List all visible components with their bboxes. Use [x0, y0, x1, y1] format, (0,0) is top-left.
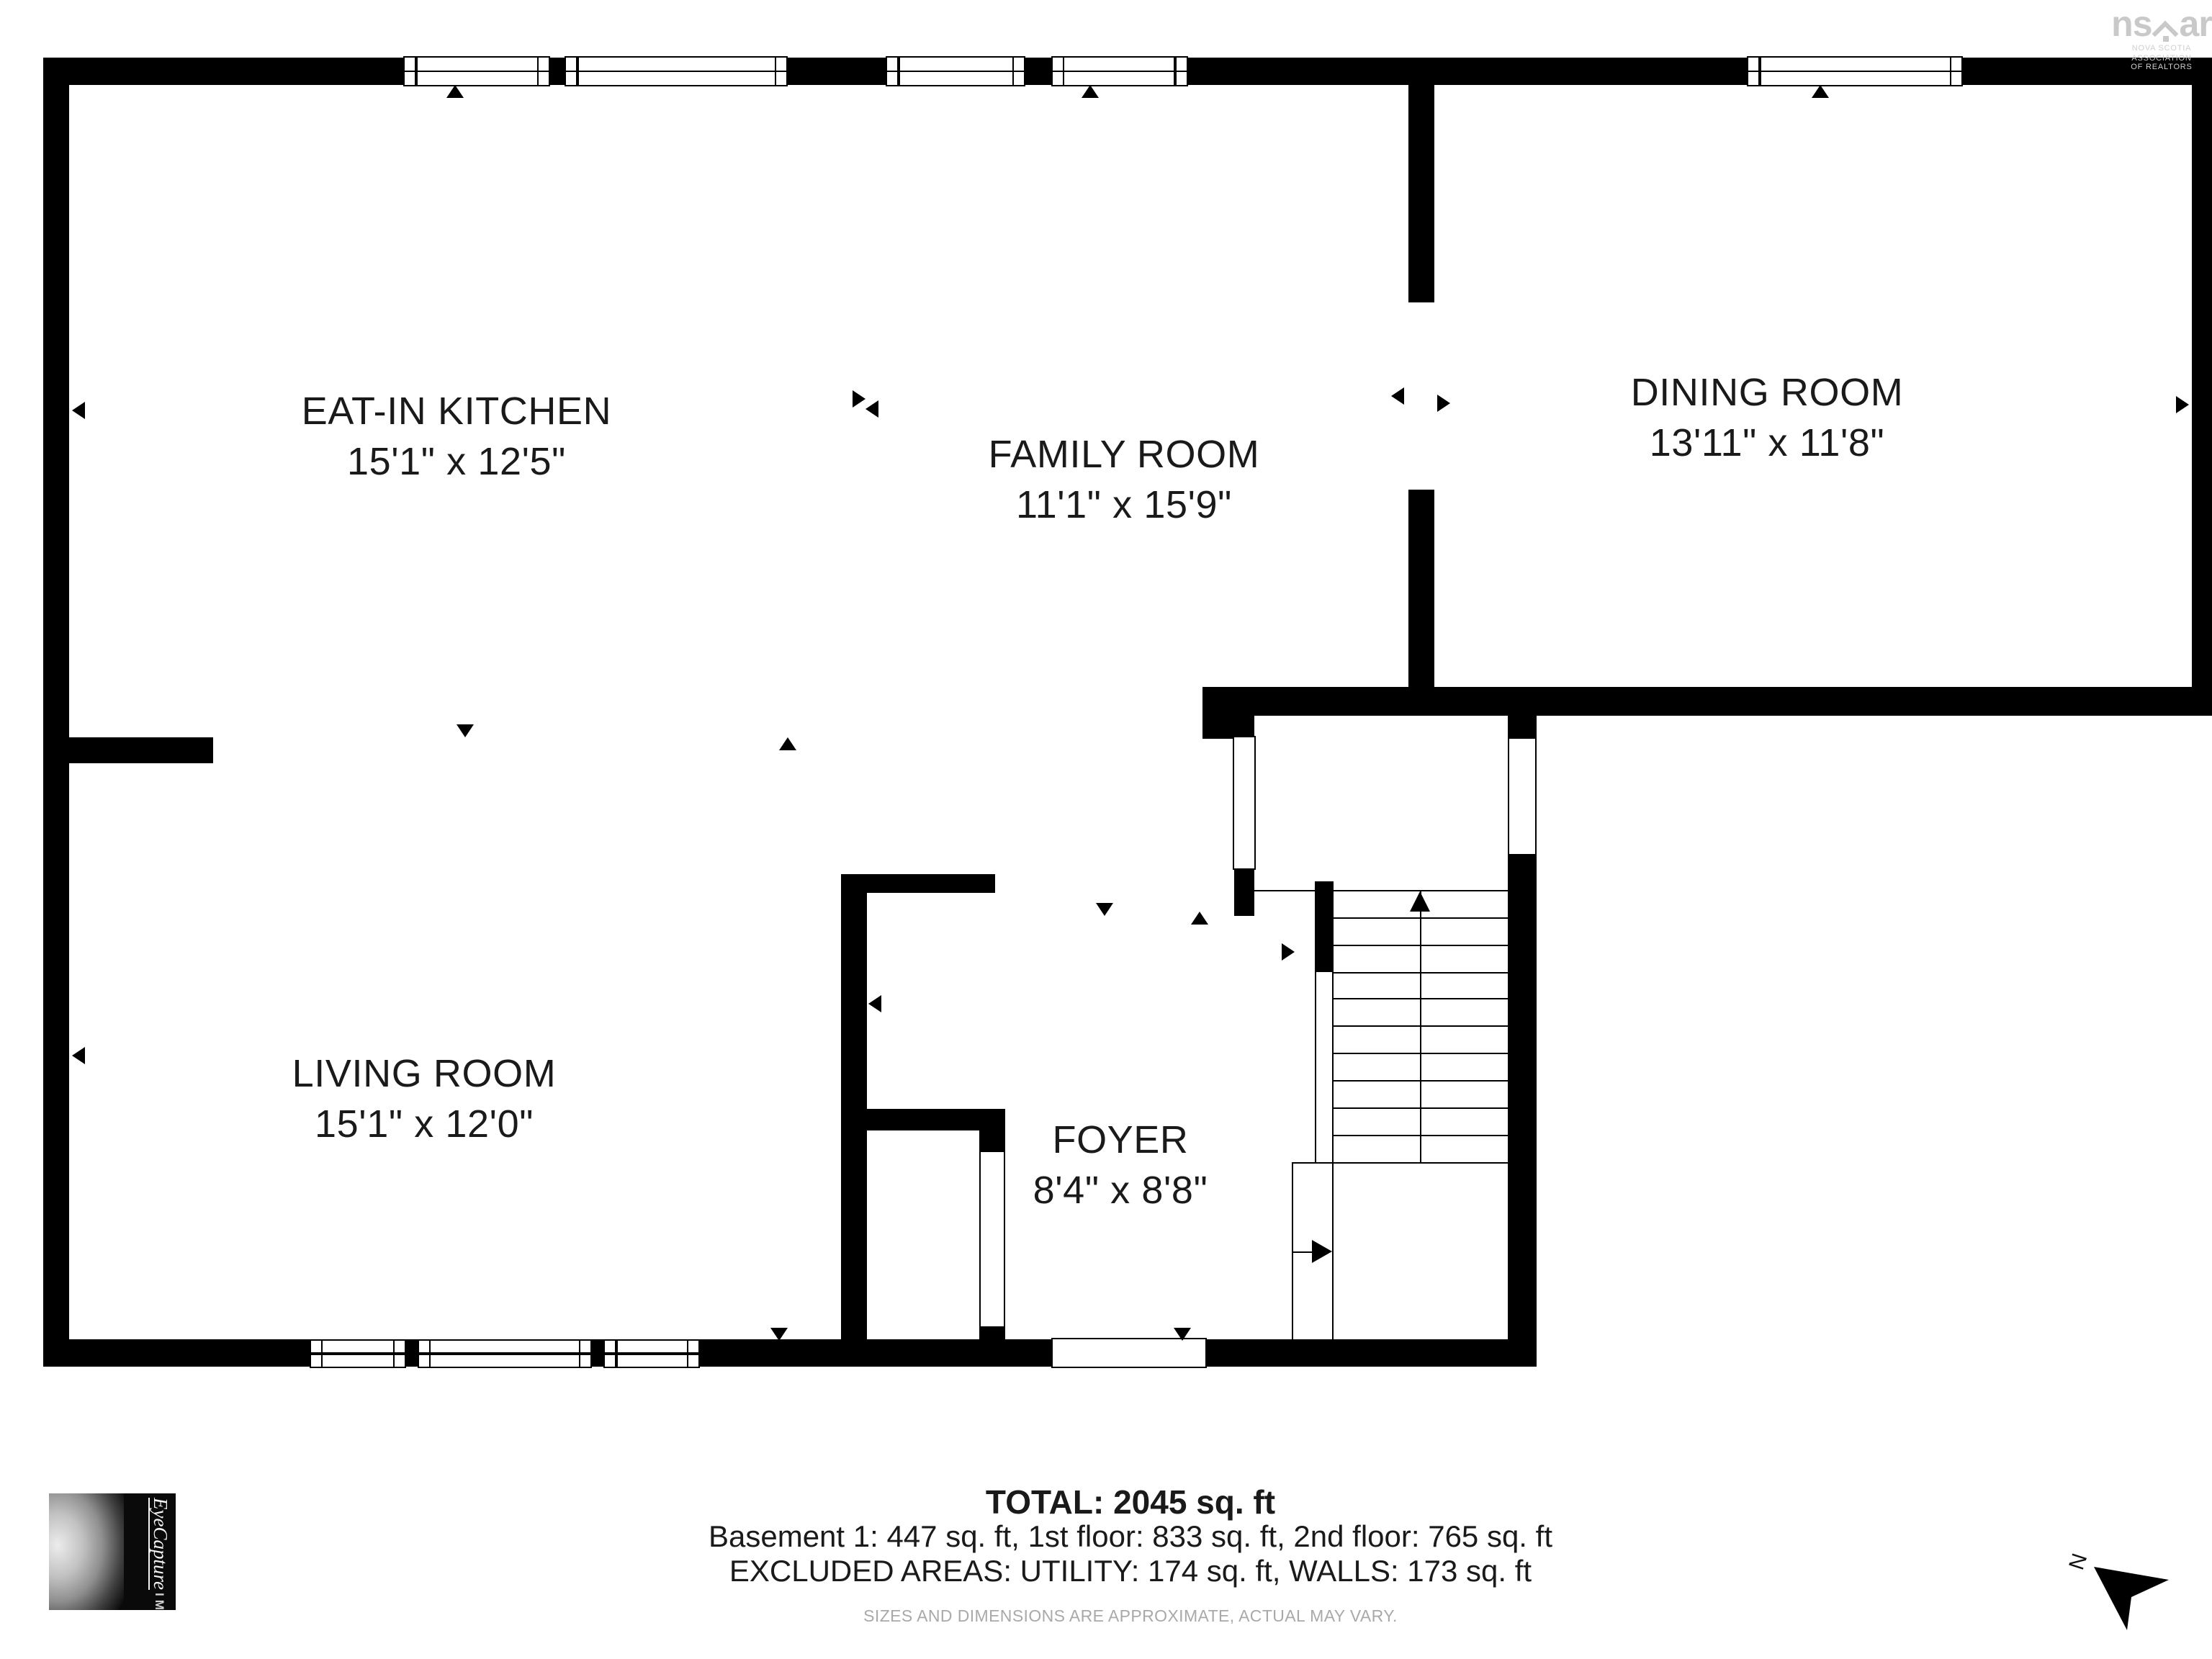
stair-center-line	[1420, 890, 1422, 1162]
room-name: DINING ROOM	[1631, 368, 1904, 418]
wall-foyer-top-stub	[841, 874, 995, 893]
nsar-wordmark-left: ns	[2111, 7, 2152, 42]
eyecapture-logo: EyeCapture IMAGES	[49, 1493, 176, 1610]
room-dims: 15'1" x 12'0"	[292, 1099, 557, 1148]
window-kitchen-2	[565, 56, 788, 86]
stair-landing-top-line	[1291, 1161, 1508, 1164]
room-name: EAT-IN KITCHEN	[302, 387, 611, 436]
window-marker-icon	[446, 85, 463, 98]
window-living-3	[603, 1339, 700, 1368]
room-dims: 13'11" x 11'8"	[1631, 418, 1904, 467]
window-marker-icon	[1812, 85, 1829, 98]
north-compass: N	[2068, 1547, 2172, 1636]
total-area-text: TOTAL: 2045 sq. ft	[709, 1483, 1552, 1521]
room-name: FAMILY ROOM	[989, 430, 1260, 480]
room-dims: 15'1" x 12'5"	[302, 436, 611, 486]
disclaimer-text: SIZES AND DIMENSIONS ARE APPROXIMATE, AC…	[709, 1609, 1552, 1626]
floor-plan-page: EAT-IN KITCHEN 15'1" x 12'5" FAMILY ROOM…	[0, 0, 2212, 1659]
stairs-up-arrow-icon	[1409, 891, 1429, 911]
house-roof-icon	[2154, 20, 2178, 42]
room-label-dining-room: DINING ROOM 13'11" x 11'8"	[1631, 368, 1904, 467]
entry-direction-arrow-icon	[1312, 1239, 1332, 1262]
front-door-opening	[1051, 1338, 1207, 1367]
excluded-areas-text: EXCLUDED AREAS: UTILITY: 174 sq. ft, WAL…	[709, 1555, 1552, 1588]
wall-kitchen-living-divider	[43, 737, 213, 763]
nsar-tagline: NOVA SCOTIA ASSOCIATION OF REALTORS	[2105, 45, 2212, 73]
window-kitchen-1	[403, 56, 550, 86]
wall-stair-left-stub	[1315, 881, 1333, 971]
window-marker-icon	[72, 1047, 85, 1064]
room-dims: 11'1" x 15'9"	[989, 480, 1260, 529]
eyecapture-images-text: IMAGES	[153, 1593, 167, 1610]
window-marker-icon	[1812, 697, 1829, 710]
window-marker-icon	[1081, 85, 1098, 98]
room-dims: 8'4" x 8'8"	[1033, 1165, 1208, 1215]
door-opening-hall-left	[1233, 736, 1255, 870]
door-swing-icon	[1437, 395, 1450, 412]
front-door-marker-icon	[1173, 1327, 1190, 1340]
door-opening-foyer-closet	[979, 1151, 1005, 1328]
face-photo	[49, 1493, 124, 1610]
opening-marker-icon	[456, 724, 473, 737]
wall-family-dining-upper	[1408, 81, 1434, 302]
nsar-wordmark: ns ar	[2105, 7, 2212, 42]
window-marker-icon	[770, 1327, 787, 1340]
window-dining	[1747, 56, 1963, 86]
wall-dining-bottom-end-block	[1202, 687, 1254, 738]
door-swing-icon	[1391, 387, 1404, 405]
door-opening-stairs	[1314, 971, 1334, 1163]
door-swing-icon	[866, 400, 878, 418]
north-label: N	[2064, 1550, 2092, 1573]
door-swing-icon	[853, 390, 866, 408]
wall-foyer-door-jamb-bottom	[979, 1328, 1005, 1341]
window-family-2	[1051, 56, 1187, 86]
opening-marker-icon	[1191, 912, 1208, 925]
door-swing-icon	[1282, 943, 1295, 961]
window-marker-icon	[72, 402, 85, 419]
window-living-2	[417, 1339, 592, 1368]
wall-left	[43, 58, 69, 1365]
room-label-foyer: FOYER 8'4" x 8'8"	[1033, 1115, 1208, 1215]
wall-dining-bottom	[1202, 687, 2212, 716]
room-label-eat-in-kitchen: EAT-IN KITCHEN 15'1" x 12'5"	[302, 387, 611, 486]
wall-foyer-door-jamb-top	[979, 1130, 1005, 1151]
wall-right-dining	[2191, 58, 2212, 716]
window-marker-icon	[2176, 396, 2189, 413]
window-living-1	[309, 1339, 406, 1368]
area-summary: TOTAL: 2045 sq. ft Basement 1: 447 sq. f…	[709, 1483, 1552, 1626]
nsar-wordmark-right: ar	[2180, 7, 2212, 42]
nsar-logo: ns ar NOVA SCOTIA ASSOCIATION OF REALTOR…	[2105, 7, 2212, 73]
window-family-1	[886, 56, 1025, 86]
eyecapture-script-text: EyeCapture	[148, 1498, 171, 1590]
room-name: FOYER	[1033, 1115, 1208, 1165]
landing-mid-line	[1332, 1161, 1334, 1340]
opening-marker-icon	[779, 737, 796, 750]
door-opening-hall-right	[1507, 737, 1537, 855]
wall-bottom	[43, 1339, 1536, 1366]
room-name: LIVING ROOM	[292, 1049, 557, 1099]
wall-foyer-left	[841, 874, 867, 1366]
stair-hall-boundary-line	[1254, 890, 1508, 892]
door-swing-icon	[868, 995, 881, 1012]
wall-foyer-mid-stub	[867, 1109, 1005, 1130]
room-label-family-room: FAMILY ROOM 11'1" x 15'9"	[989, 430, 1260, 529]
wall-family-dining-lower	[1408, 490, 1434, 687]
area-breakdown-text: Basement 1: 447 sq. ft, 1st floor: 833 s…	[709, 1521, 1552, 1555]
north-arrow-icon	[2091, 1567, 2177, 1639]
wall-hall-left-stub	[1234, 867, 1254, 916]
room-label-living-room: LIVING ROOM 15'1" x 12'0"	[292, 1049, 557, 1148]
eyecapture-text: EyeCapture IMAGES	[148, 1498, 171, 1606]
opening-marker-icon	[1095, 903, 1112, 916]
